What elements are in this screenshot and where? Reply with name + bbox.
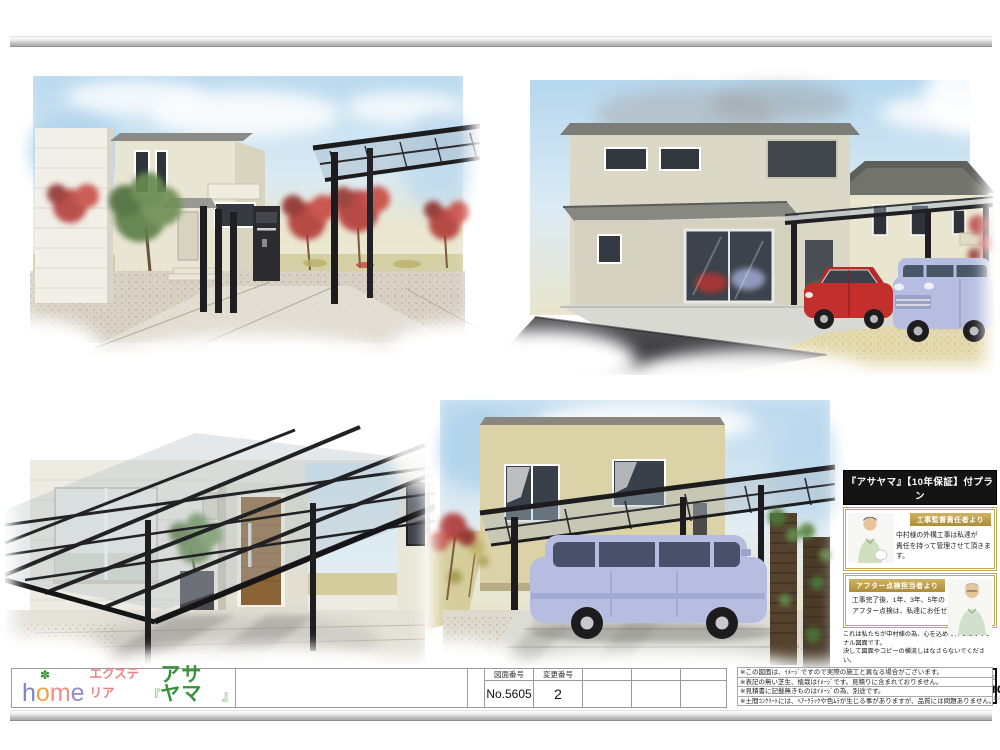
lavender-minivan-side: [530, 535, 775, 643]
empty-column-1: [582, 668, 632, 708]
carport-scene: [425, 385, 845, 670]
supervisor-photo: [848, 513, 894, 563]
rendering-driveway-overview: [505, 55, 995, 375]
disclaimer-notes: ※この図面は、ｲﾒｰｼﾞですので実際の施工と異なる場合がございます。 ※表記の無…: [737, 668, 993, 706]
title-block: ✽ home エクステリア 『 アサヤマ 』 図面番号 No.5605 変更番号…: [12, 668, 727, 708]
logo-exterior: エクステリア: [90, 663, 145, 701]
titleblock-empty-narrow: [467, 668, 485, 708]
side-brick-wall: [35, 128, 113, 303]
picture-window: [685, 230, 773, 302]
supervisor-box: 工事監督責任者より 中村様の外構工事は私達が 責任を持って管理させて頂きます。: [843, 507, 997, 571]
logo-quote-open: 『: [147, 685, 160, 704]
drawing-number-value: No.5605: [485, 681, 533, 707]
rendering-entrance-canopy: [5, 375, 435, 665]
logo-home-letter: h: [22, 679, 36, 707]
logo-brand-name: アサヤマ: [160, 666, 222, 704]
function-pole-mailbox: [253, 206, 280, 281]
logo-home-letter: o: [36, 679, 50, 707]
logo-home-letter: e: [71, 679, 85, 707]
change-number-column: 変更番号 2: [533, 668, 583, 708]
clover-icon: ✽: [40, 669, 50, 681]
front-approach-scene: [15, 56, 480, 356]
note-line: ※土間ｺﾝｸﾘｰﾄには、ﾍｱｰｸﾗｯｸや色ﾑﾗが生じる事がありますが、品質には問…: [737, 696, 993, 707]
empty-column-3: [680, 668, 727, 708]
original-drawing-notice: これは私たちが中村様の為、心を込めて作ったオリジナル図面です。 決して図面やコピ…: [843, 631, 997, 666]
logo-home-letter: m: [50, 679, 71, 707]
aftercare-badge: アフター点検担当者より: [849, 579, 945, 592]
logo-quote-close: 』: [222, 685, 235, 704]
rendering-carport-van: [425, 385, 845, 670]
driveway-scene: [505, 55, 995, 375]
empty-column-2: [631, 668, 681, 708]
warranty-title: 『アサヤマ』【10年保証】付プラン: [843, 470, 997, 505]
drawing-number-column: 図面番号 No.5605: [484, 668, 534, 708]
titleblock-empty-wide: [235, 668, 468, 708]
logo-home: home: [22, 682, 85, 705]
drawing-sheet: 『アサヤマ』【10年保証】付プラン 工事監督責任者より 中村様の外構工事は私達が…: [0, 0, 1000, 750]
entrance-scene: [5, 375, 435, 665]
company-logo: ✽ home エクステリア 『 アサヤマ 』: [11, 668, 236, 708]
gate-posts: [200, 206, 237, 313]
supervisor-badge: 工事監督責任者より: [910, 513, 991, 526]
change-number-value: 2: [534, 681, 582, 707]
bottom-divider-bar: [10, 710, 992, 721]
aftercare-photo: [948, 579, 992, 635]
change-number-label: 変更番号: [534, 669, 582, 681]
supervisor-message: 中村様の外構工事は私達が 責任を持って管理させて頂きます。: [896, 531, 994, 563]
top-divider-bar: [10, 36, 992, 47]
aftercare-box: アフター点検担当者より 工事完了後、1年、3年、5年の アフター点検は、私達にお…: [843, 573, 997, 628]
drawing-number-label: 図面番号: [485, 669, 533, 681]
rendering-front-approach: [15, 56, 480, 356]
